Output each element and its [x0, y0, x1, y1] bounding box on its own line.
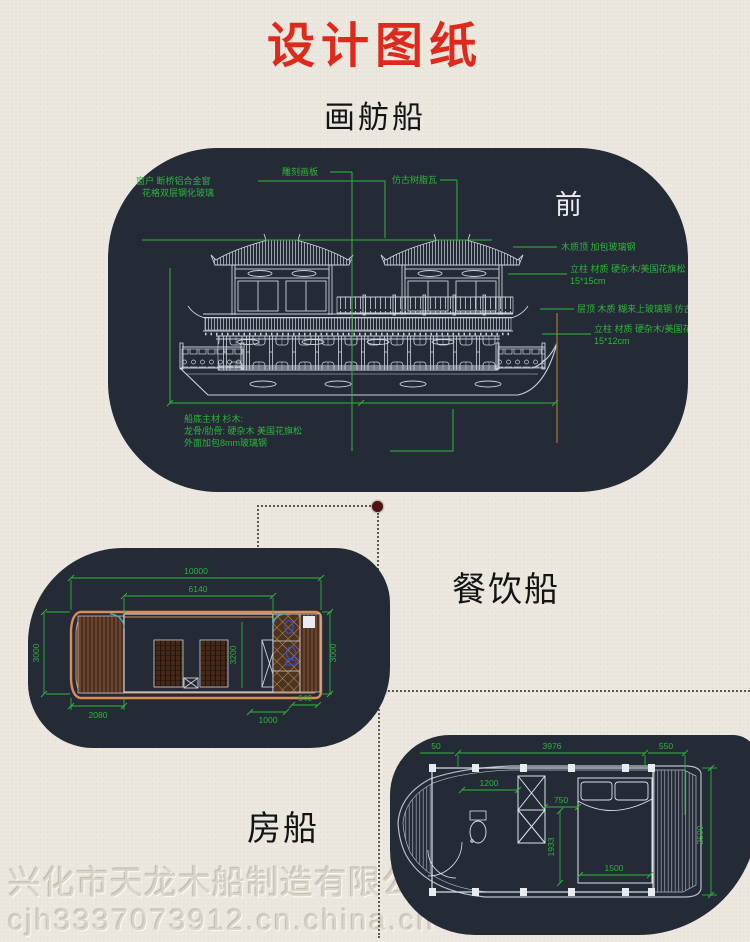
elevation-linework: [180, 234, 557, 395]
wood-top-label: 木质顶 加包玻璃钢: [561, 241, 636, 252]
dining-boat-plan-drawing: 10000 6140 3000 3200 3000 2080 1000 640: [28, 548, 390, 748]
house-boat-plan-drawing: 50 3976 550 1200 750 1933 1500 2500: [390, 735, 750, 935]
dim-aisle: 750: [554, 795, 568, 805]
hull-material-line2: 龙骨/肋骨: 硬杂木 美国花旗松: [184, 425, 302, 436]
window-label-line1: 窗户 断桥铝合金窗: [136, 175, 211, 186]
dim-stern: 640: [298, 693, 312, 703]
direction-label-front: 前: [555, 190, 582, 220]
pillar-upper-label-line1: 立柱 材质 硬杂木/美国花旗松: [570, 263, 686, 274]
dim-beam-right: 3000: [328, 643, 338, 662]
dim-bed: 1500: [605, 863, 624, 873]
dim-cabin-length: 6140: [189, 584, 208, 594]
connector-line: [257, 505, 375, 507]
watermark-company: 兴化市天龙木船制造有限公司: [8, 856, 450, 904]
antique-tile-label: 仿古树脂瓦: [392, 174, 437, 185]
page-title: 设计图纸: [0, 6, 750, 76]
pillar-lower-label-line1: 立柱 材质 硬杂木/美国花旗: [594, 323, 688, 334]
carved-panel-label: 雕刻画板: [282, 166, 318, 177]
dim-beam-left: 3000: [31, 643, 41, 662]
dim-beam: 2500: [695, 825, 705, 844]
pleasure-boat-panel: 窗户 断桥铝合金窗 花格双层钢化玻璃 雕刻画板 仿古树脂瓦 木质顶 加包玻璃钢 …: [108, 148, 688, 492]
roof-layer-label: 层顶 木质 糊来上玻璃钢 仿古轩: [577, 303, 688, 314]
dim-overall-length: 10000: [184, 566, 208, 576]
dim-bow-deck: 2080: [89, 710, 108, 720]
house-decks: [400, 768, 699, 896]
dining-boat-panel: 10000 6140 3000 3200 3000 2080 1000 640: [28, 548, 390, 748]
window-label-line2: 花格双层钢化玻璃: [142, 187, 214, 198]
page-subtitle: 画舫船: [0, 92, 750, 137]
dim-wc-room: 1200: [480, 778, 499, 788]
dim-wc: 1000: [259, 715, 278, 725]
watermark: 兴化市天龙木船制造有限公司 cjh3337073912.cn.china.cn: [8, 856, 450, 938]
pillar-upper-label-line2: 15*15cm: [570, 276, 606, 286]
pillar-lower-label-line2: 15*12cm: [594, 336, 630, 346]
dim-bow-partial: 50: [431, 741, 441, 751]
house-interior: [428, 764, 655, 896]
section-label-house-boat: 房船: [247, 801, 319, 850]
dim-cabin-width: 3200: [228, 645, 238, 664]
hull-material-line1: 船底主材 杉木:: [184, 413, 243, 424]
dim-cabin-length: 3976: [543, 741, 562, 751]
dim-stern-deck: 550: [659, 741, 673, 751]
connector-line: [388, 690, 750, 692]
pleasure-boat-elevation-drawing: 窗户 断桥铝合金窗 花格双层钢化玻璃 雕刻画板 仿古树脂瓦 木质顶 加包玻璃钢 …: [108, 148, 688, 492]
dining-interior: [78, 614, 320, 693]
design-sheet-page: 设计图纸 画舫船 兴化市天龙木船制造有限公司 cjh3337073912.cn.…: [0, 0, 750, 942]
dim-inner-width: 1933: [546, 837, 556, 856]
connector-line: [257, 505, 259, 551]
section-label-dining-boat: 餐饮船: [452, 562, 560, 611]
hull-material-line3: 外面加包8mm玻璃钢: [184, 437, 267, 448]
connector-dot: [372, 501, 383, 512]
house-boat-panel: 50 3976 550 1200 750 1933 1500 2500: [390, 735, 750, 935]
watermark-url: cjh3337073912.cn.china.cn: [8, 904, 450, 938]
